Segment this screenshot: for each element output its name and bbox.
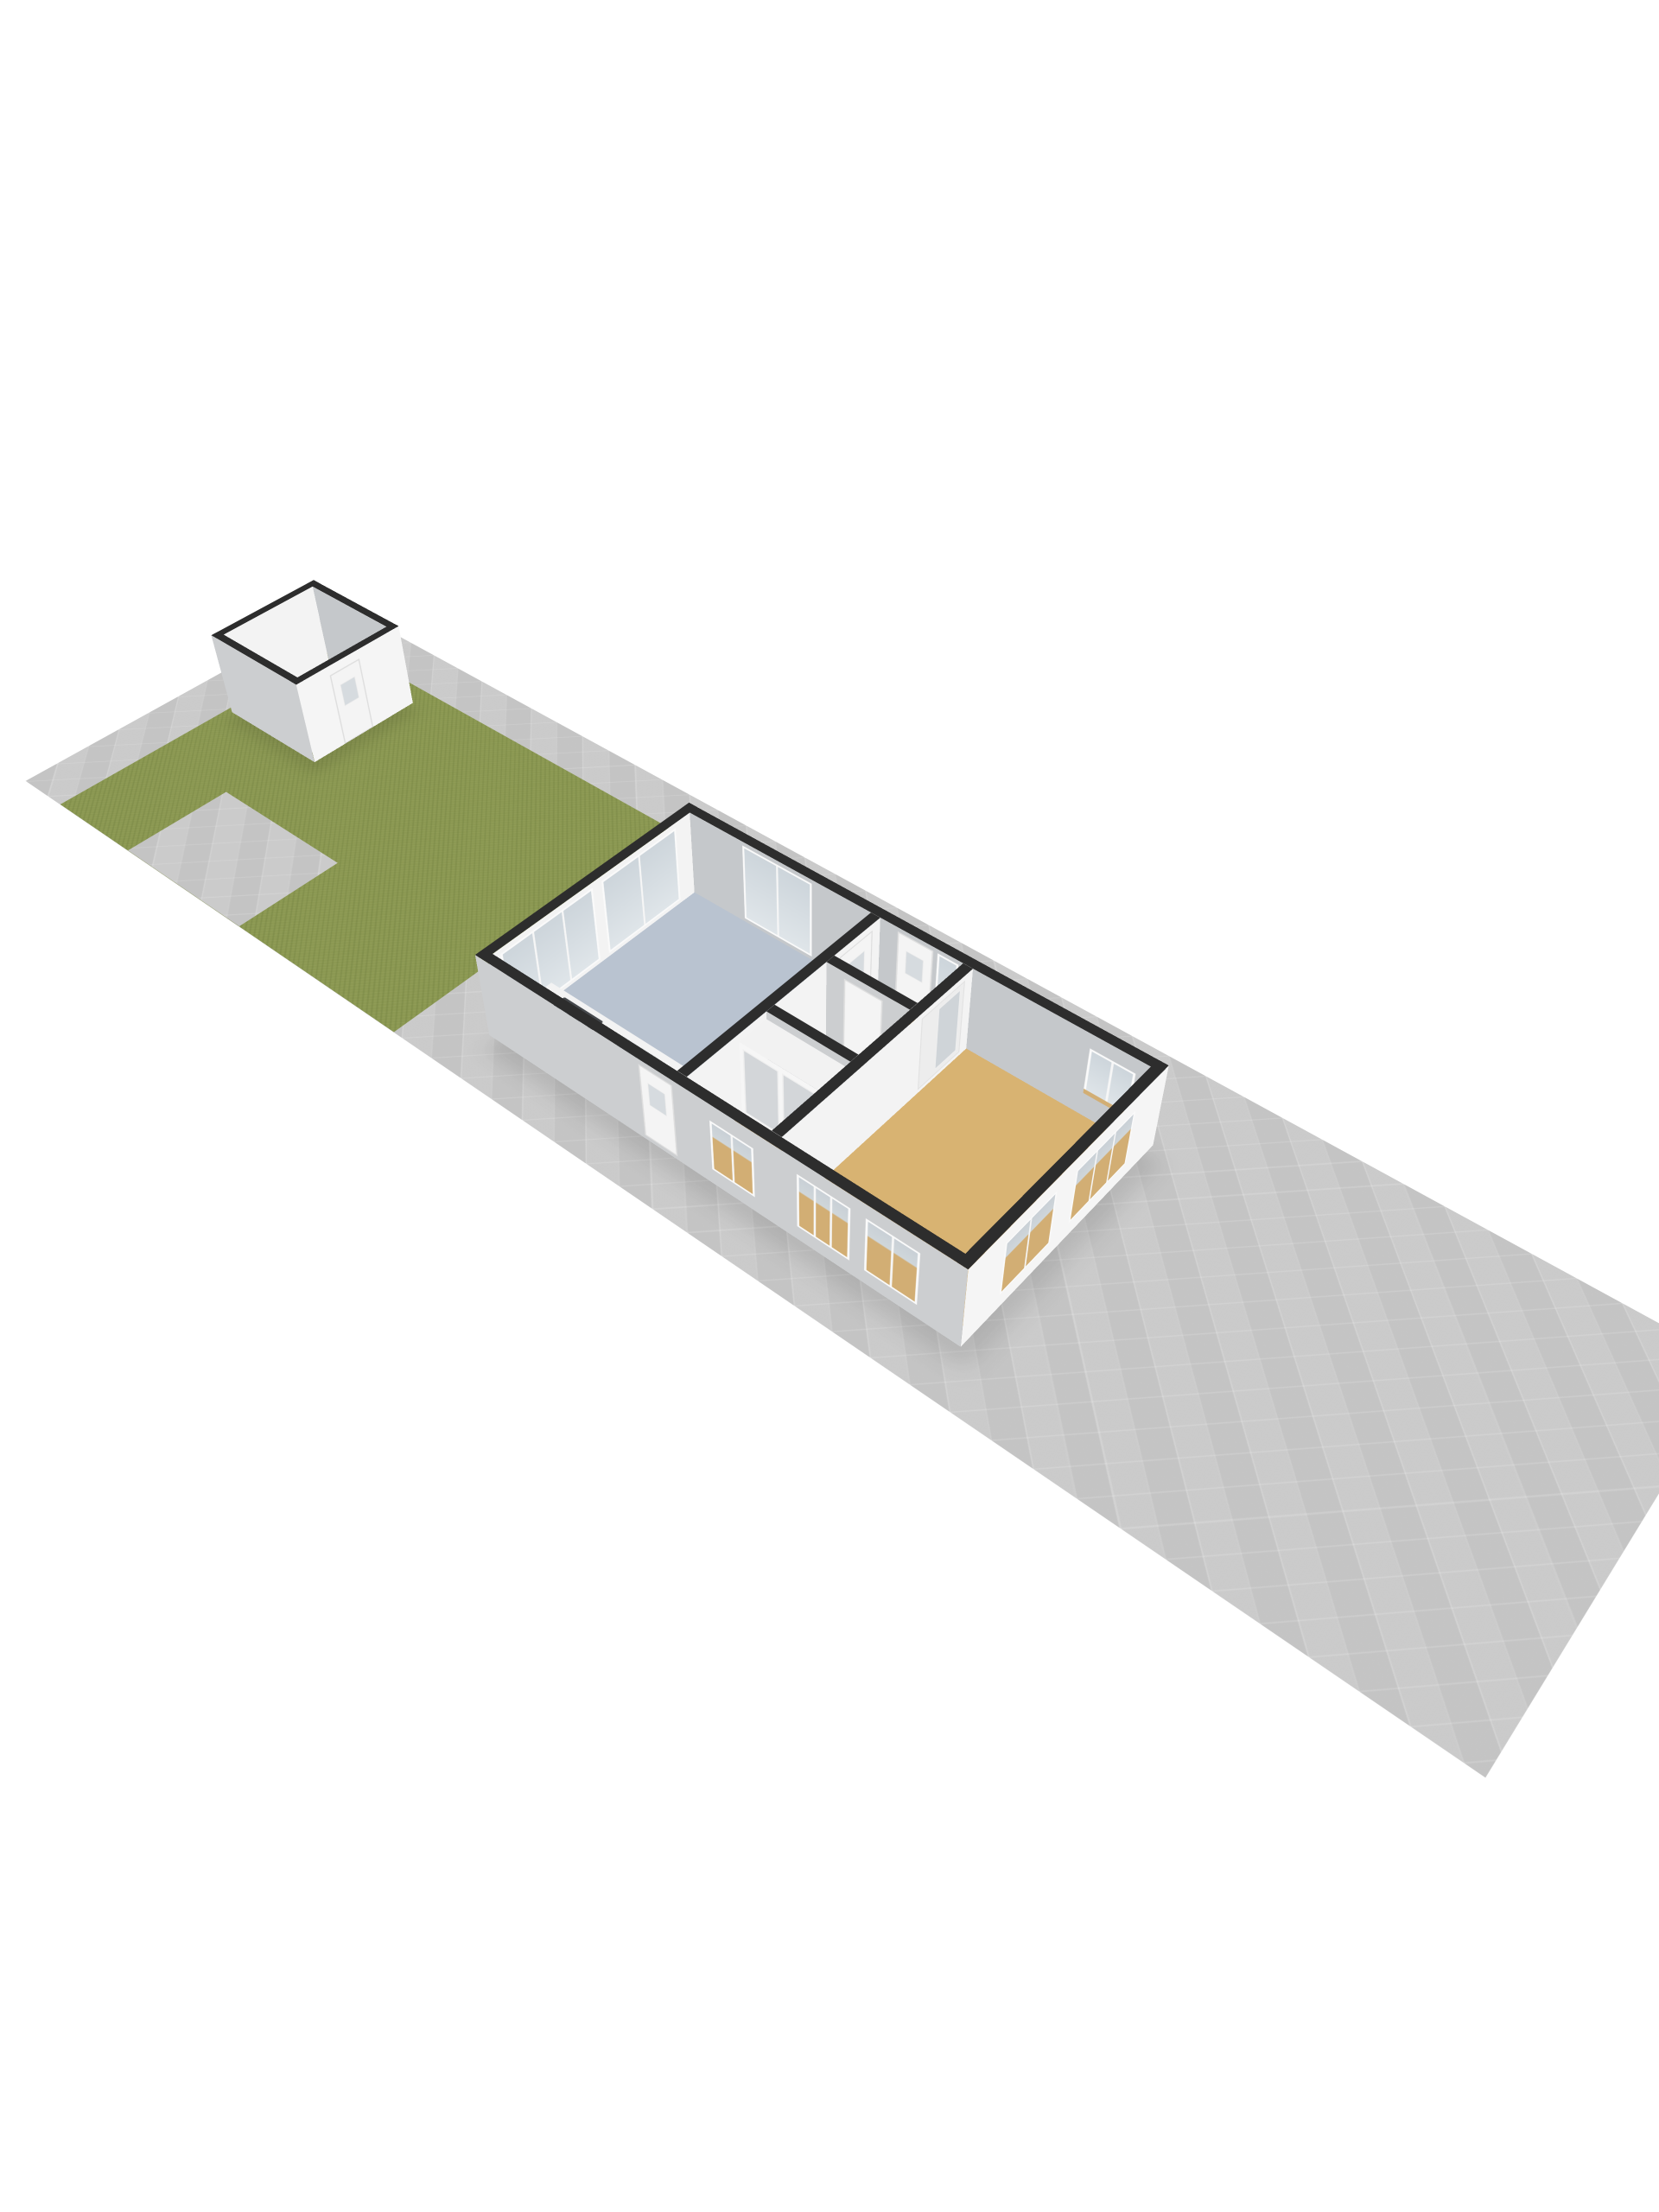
front-door-window	[905, 950, 924, 983]
floorplan-3d-scene	[0, 0, 1659, 2212]
shed-door-window	[340, 676, 359, 706]
plot-plan	[0, 550, 1659, 1777]
back-door-window	[647, 1083, 666, 1116]
isometric-stage	[0, 0, 1659, 2212]
